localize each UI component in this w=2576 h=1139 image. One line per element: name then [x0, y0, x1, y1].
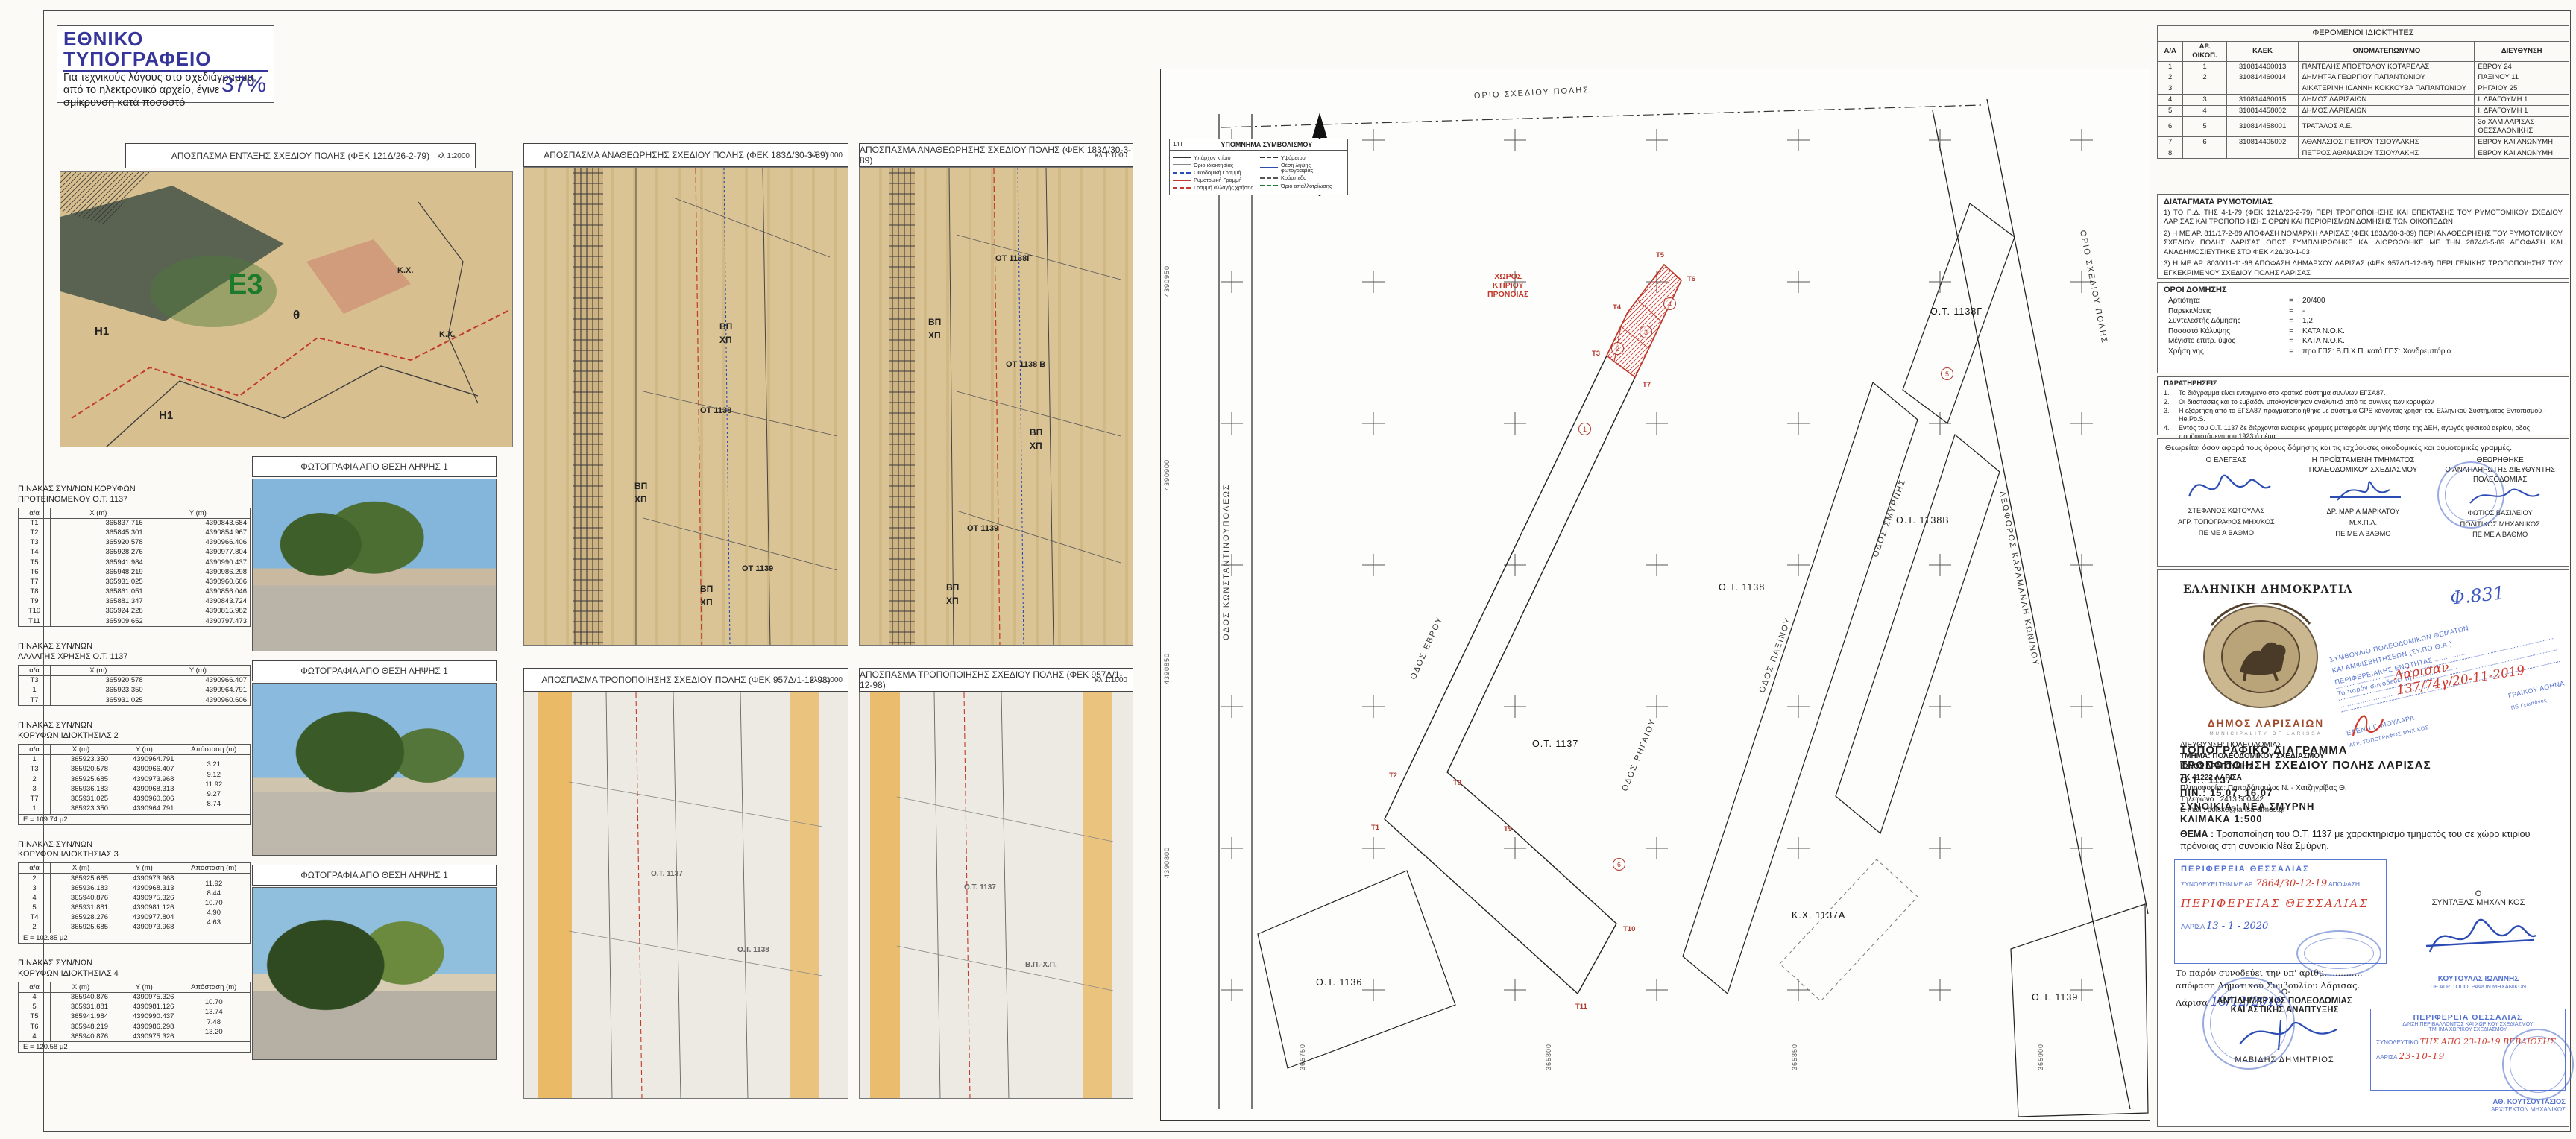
notes-box: ΠΑΡΑΤΗΡΗΣΕΙΣ 1.Το διάγραμμα είναι ενταγμ…: [2157, 376, 2569, 435]
map-zone-label: Β.Π.-Χ.Π.: [1025, 961, 1057, 969]
welfare-building-label: ΧΩΡΟΣΚΤΙΡΙΟΥΠΡΟΝΟΙΑΣ: [1487, 272, 1528, 299]
legend: 1/Π ΥΠΟΜΝΗΜΑ ΣΥΜΒΟΛΙΣΜΟΥ Υπάρχον κτίριοΌ…: [1169, 139, 1348, 195]
photo-site-2: [252, 683, 497, 856]
map1-caption-text: ΑΠΟΣΠΑΣΜΑ ΕΝΤΑΞΗΣ ΣΧΕΔΙΟΥ ΠΟΛΗΣ (ΦΕΚ 121…: [171, 151, 429, 161]
legend-entry: Υψόμετρο: [1260, 155, 1344, 161]
coord-table-4: ΠΙΝΑΚΑΣ ΣΥΝ/ΝΩΝΚΟΡΥΦΩΝ ΙΔΙΟΚΤΗΣΙΑΣ 3 α/α…: [18, 840, 251, 944]
coord-table-1: ΠΙΝΑΚΑΣ ΣΥΝ/ΝΩΝ ΚΟΡΥΦΩΝΠΡΟΤΕΙΝΟΜΕΝΟΥ Ο.Τ…: [18, 485, 251, 627]
region-stamp-1: ΠΕΡΙΦΕΡΕΙΑ ΘΕΣΣΑΛΙΑΣ ΣΥΝΟΔΕΥΕΙ ΤΗΝ ΜΕ ΑΡ…: [2174, 859, 2387, 964]
coordinate-tables: ΠΙΝΑΚΑΣ ΣΥΝ/ΝΩΝ ΚΟΡΥΦΩΝΠΡΟΤΕΙΝΟΜΕΝΟΥ Ο.Τ…: [18, 485, 251, 1067]
decree-item: 1) ΤΟ Π.Δ. ΤΗΣ 4-1-79 (ΦΕΚ 121Δ/26-2-79)…: [2164, 209, 2563, 227]
map-zone-label: ΒΠ: [700, 584, 713, 594]
x-coordinate-label: 365800: [1545, 1044, 1552, 1070]
parcel-number: 3: [1640, 326, 1652, 338]
legend-entry: Υπάρχον κτίριο: [1173, 155, 1257, 161]
reduction-percent: 37%: [221, 72, 266, 98]
owner-row: 22310814460014ΔΗΜΗΤΡΑ ΓΕΩΡΓΙΟΥ ΠΑΠΑΝΤΩΝΙ…: [2158, 72, 2569, 83]
approval-col-checker: Ο ΕΛΕΓΞΑΣ ΣΤΕΦΑΝΟΣ ΚΩΤΟΥΛΑΣΑΓΡ. ΤΟΠΟΓΡΑΦ…: [2158, 455, 2295, 540]
legend-entry: Όριο ιδιοκτησίας: [1173, 163, 1257, 168]
signature-checker: [2178, 465, 2275, 504]
owner-row: 8ΠΕΤΡΟΣ ΑΘΑΝΑΣΙΟΥ ΤΣΙΟΥΛΑΚΗΣΕΒΡΟΥ ΚΑΙ ΑΝ…: [2158, 148, 2569, 159]
coord-row: Τ8365861.0514390856.046: [19, 587, 251, 597]
map1-caption: ΑΠΟΣΠΑΣΜΑ ΕΝΤΑΞΗΣ ΣΧΕΔΙΟΥ ΠΟΛΗΣ (ΦΕΚ 121…: [125, 143, 476, 168]
coord-row: Τ3365920.5784390966.406: [19, 538, 251, 548]
legend-entry: Ρυμοτομική Γραμμή: [1173, 177, 1257, 183]
photo1-caption: ΦΩΤΟΓΡΑΦΙΑ ΑΠΟ ΘΕΣΗ ΛΗΨΗΣ 1: [252, 456, 497, 477]
map-zone-label: ΟΤ 1138Γ: [995, 254, 1032, 263]
municipal-seal: [2437, 461, 2504, 529]
parcel-number: 4: [1663, 297, 1676, 310]
map-zone-label: Ε3: [228, 269, 262, 301]
mapB-top-drawing: [860, 168, 1133, 646]
sypotha-member-2: ΓΡΑΪΚΟΥ ΑΘΗΝΑΠΕ Γεωπόνος: [2507, 678, 2569, 713]
site-plan: Ο.Τ. 1137Ο.Τ. 1138Ο.Τ. 1138ΒΟ.Τ. 1138ΓΟ.…: [1160, 69, 2150, 1121]
map-zone-label: Η1: [159, 409, 173, 422]
term-row: Ποσοστό Κάλυψης=ΚΑΤΑ Ν.Ο.Κ.: [2168, 327, 2569, 335]
map-zone-label: ΧΠ: [634, 494, 647, 505]
map-zone-label: Ο.Τ. 1137: [651, 870, 683, 878]
drawing-sheet: ΕΘΝΙΚΟ ΤΥΠΟΓΡΑΦΕΙΟ Για τεχνικούς λόγους …: [0, 0, 2576, 1139]
coord-row: Τ7365931.0254390960.606: [19, 577, 251, 587]
approval-statement: Θεωρείται όσον αφορά τους όρους δόμησης …: [2165, 444, 2561, 452]
block-label: Κ.Χ. 1137Α: [1792, 910, 1845, 921]
map-zone-label: θ: [293, 308, 300, 323]
theme: ΘΕΜΑ : Τροποποίηση του Ο.Τ. 1137 με χαρα…: [2180, 828, 2557, 853]
site-plan-drawing: [1161, 69, 2150, 1120]
term-row: Συντελεστής Δόμησης=1,2: [2168, 317, 2569, 325]
mapB-top-caption: ΑΠΟΣΠΑΣΜΑ ΑΝΑΘΕΩΡΗΣΗΣ ΣΧΕΔΙΟΥ ΠΟΛΗΣ (ΦΕΚ…: [859, 143, 1133, 167]
parcel-number: 1: [1578, 423, 1591, 435]
notes-list: 1.Το διάγραμμα είναι ενταγμένο στο κρατι…: [2158, 389, 2569, 441]
legend-symbol-line: [1173, 187, 1191, 189]
coord-table-4-title: ΠΙΝΑΚΑΣ ΣΥΝ/ΝΩΝΚΟΡΥΦΩΝ ΙΔΙΟΚΤΗΣΙΑΣ 3: [18, 840, 251, 861]
x-coordinate-label: 365850: [1791, 1044, 1798, 1070]
y-coordinate-label: 4390850: [1163, 653, 1171, 684]
legend-entry: Γραμμή αλλαγής χρήσης: [1173, 185, 1257, 191]
y-coordinate-label: 4390800: [1163, 847, 1171, 878]
mapB-top-body: ΟΤ 1138ΓΒΠΧΠΟΤ 1138 ΒΒΠΧΠΟΤ 1139ΒΠΧΠ: [859, 167, 1133, 646]
y-coordinate-label: 4390900: [1163, 459, 1171, 490]
area-value: Ε = 120.58 μ2: [18, 1042, 251, 1053]
survey-point-label: Τ6: [1687, 275, 1695, 283]
map-zone-label: ΧΠ: [928, 330, 941, 341]
terms-list: Αρτιότητα=20/400 Παρεκκλίσεις=- Συντελεσ…: [2158, 297, 2569, 356]
legend-symbol-line: [1260, 185, 1278, 186]
y-coordinate-label: 4390950: [1163, 265, 1171, 297]
deputy-round-seal: [2202, 977, 2295, 1070]
map1-body: Ε3Η1Η1θΚ.Χ.Κ.Χ.: [60, 171, 513, 447]
term-row: Μέγιστο επιτρ. ύψος=ΚΑΤΑ Ν.Ο.Κ.: [2168, 337, 2569, 345]
map-zone-label: Κ.Χ.: [397, 266, 413, 275]
approval-box: Θεωρείται όσον αφορά τους όρους δόμησης …: [2157, 438, 2569, 567]
owner-row: 11310814460013ΠΑΝΤΕΛΗΣ ΑΠΟΣΤΟΛΟΥ ΚΟΤΑΡΕΛ…: [2158, 61, 2569, 72]
region2-round-seal: [2502, 1029, 2574, 1100]
map-zone-label: ΒΠ: [1030, 427, 1042, 438]
survey-point-label: Τ11: [1575, 1003, 1587, 1011]
map-zone-label: ΧΠ: [946, 596, 959, 606]
block-label: Ο.Τ. 1136: [1316, 977, 1362, 988]
approval-col-head: Η ΠΡΟΪΣΤΑΜΕΝΗ ΤΜΗΜΑΤΟΣΠΟΛΕΟΔΟΜΙΚΟΥ ΣΧΕΔΙ…: [2295, 455, 2432, 540]
survey-point-label: Τ8: [1453, 779, 1461, 787]
survey-point-label: Τ9: [1504, 825, 1512, 833]
owners-table: ΦΕΡΟΜΕΝΟΙ ΙΔΙΟΚΤΗΤΕΣ Α/Α ΑΡ. ΟΙΚΟΠ. ΚΑΕΚ…: [2157, 25, 2569, 159]
owners-title: ΦΕΡΟΜΕΝΟΙ ΙΔΙΟΚΤΗΤΕΣ: [2158, 26, 2569, 42]
map-zone-label: ΒΠ: [946, 582, 959, 593]
legend-symbol-line: [1173, 180, 1191, 181]
mapA-bottom-drawing: [524, 692, 848, 1099]
block-label: Ο.Τ. 1138Γ: [1930, 306, 1983, 317]
municipality-name-en: MUNICIPALITY OF LARISSA: [2180, 731, 2352, 736]
notes-title: ΠΑΡΑΤΗΡΗΣΕΙΣ: [2164, 379, 2569, 388]
photo-site-1: [252, 479, 497, 651]
survey-point-label: Τ10: [1623, 925, 1635, 933]
red-initials-scribble: [2346, 706, 2390, 743]
coord-row: Τ7365931.0254390960.606: [19, 695, 251, 706]
survey-point-label: Τ5: [1656, 251, 1664, 259]
coord-row: Τ1365837.7164390843.684: [19, 518, 251, 529]
map1-scale: κλ 1:2000: [438, 152, 470, 160]
coord-row: Τ3365920.5784390966.407: [19, 675, 251, 686]
map-zone-label: ΧΠ: [700, 597, 713, 608]
map-zone-label: ΒΠ: [634, 481, 647, 491]
signature-head: [2315, 475, 2412, 505]
photo3-caption: ΦΩΤΟΓΡΑΦΙΑ ΑΠΟ ΘΕΣΗ ΛΗΨΗΣ 1: [252, 865, 497, 886]
owner-row: 43310814460015ΔΗΜΟΣ ΛΑΡΙΣΑΙΩΝΙ. ΔΡΑΓΟΥΜΗ…: [2158, 95, 2569, 106]
coord-table-1-title: ΠΙΝΑΚΑΣ ΣΥΝ/ΝΩΝ ΚΟΡΥΦΩΝΠΡΟΤΕΙΝΟΜΕΝΟΥ Ο.Τ…: [18, 485, 251, 505]
map-zone-label: ΒΠ: [928, 317, 941, 327]
map-zone-label: Η1: [95, 325, 109, 338]
owner-row: 54310814458002ΔΗΜΟΣ ΛΑΡΙΣΑΙΩΝΙ. ΔΡΑΓΟΥΜΗ…: [2158, 106, 2569, 117]
legend-entry: Όριο απαλλοτρίωσης: [1260, 183, 1344, 189]
republic-header: ΕΛΛΗΝΙΚΗ ΔΗΜΟΚΡΑΤΙΑ: [2183, 584, 2352, 596]
building-terms-box: ΟΡΟΙ ΔΟΜΗΣΗΣ Αρτιότητα=20/400 Παρεκκλίσε…: [2157, 282, 2569, 373]
document-title: ΤΟΠΟΓΡΑΦΙΚΟ ΔΙΑΓΡΑΜΜΑ ΤΡΟΠΟΠΟΙΗΣΗ ΣΧΕΔΙΟ…: [2180, 743, 2431, 826]
mapB-bottom-body: Ο.Τ. 1137Β.Π.-Χ.Π.: [859, 692, 1133, 1099]
owner-row: 65310814458001ΤΡΑΤΑΛΟΣ Α.Ε.3ο ΧΛΜ ΛΑΡΙΣΑ…: [2158, 116, 2569, 136]
coord-row: Τ10365924.2284390815.982: [19, 607, 251, 616]
notice-line3: σμίκρυνση κατά ποσοστό: [63, 97, 268, 110]
drafting-engineer: Ο ΣΥΝΤΑΞΑΣ ΜΗΧΑΝΙΚΟΣ ΚΟΥΤΟΥΛΑΣ ΙΩΑΝΝΗΣ Π…: [2404, 889, 2553, 990]
photo-site-3: [252, 887, 497, 1060]
map-zone-label: Κ.Χ.: [439, 330, 455, 339]
term-row: Παρεκκλίσεις=-: [2168, 307, 2569, 315]
legend-right-column: ΥψόμετροΘέση λήψης φωτογραφίαςΚράσπεδοΌρ…: [1260, 153, 1344, 192]
coord-table-3-title: ΠΙΝΑΚΑΣ ΣΥΝ/ΝΩΝΚΟΡΥΦΩΝ ΙΔΙΟΚΤΗΣΙΑΣ 2: [18, 721, 251, 742]
printing-office-notice: ΕΘΝΙΚΟ ΤΥΠΟΓΡΑΦΕΙΟ Για τεχνικούς λόγους …: [57, 25, 274, 103]
notice-title: ΕΘΝΙΚΟ ΤΥΠΟΓΡΑΦΕΙΟ: [63, 29, 268, 72]
coord-row: Τ2365845.3014390854.967: [19, 529, 251, 538]
x-coordinate-label: 365750: [1299, 1044, 1306, 1070]
region-stamp-2: ΠΕΡΙΦΕΡΕΙΑ ΘΕΣΣΑΛΙΑΣ Δ/ΝΣΗ ΠΕΡΙΒΑΛΛΟΝΤΟΣ…: [2370, 1009, 2566, 1091]
coord-row: Τ4365928.2764390977.804: [19, 548, 251, 558]
checker-name: ΣΤΕΦΑΝΟΣ ΚΩΤΟΥΛΑΣΑΓΡ. ΤΟΠΟΓΡΑΦΟΣ ΜΗΧ/ΚΟΣ…: [2158, 505, 2295, 539]
area-value: Ε = 109.74 μ2: [18, 815, 251, 825]
coord-table-2-title: ΠΙΝΑΚΑΣ ΣΥΝ/ΝΩΝΑΛΛΑΓΗΣ ΧΡΗΣΗΣ Ο.Τ. 1137: [18, 642, 251, 663]
legend-entry: Θέση λήψης φωτογραφίας: [1260, 163, 1344, 174]
terms-title: ΟΡΟΙ ΔΟΜΗΣΗΣ: [2164, 285, 2569, 294]
coord-table-5-title: ΠΙΝΑΚΑΣ ΣΥΝ/ΝΩΝΚΟΡΥΦΩΝ ΙΔΙΟΚΤΗΣΙΑΣ 4: [18, 959, 251, 979]
coord-row: 4365940.8764390975.32613.20: [19, 1032, 251, 1042]
decree-item: 2) Η ΜΕ ΑΡ. 811/17-2-89 ΑΠΟΦΑΣΗ ΝΟΜΑΡΧΗ …: [2164, 230, 2563, 257]
block-label: Ο.Τ. 1139: [2032, 992, 2078, 1003]
legend-title: ΥΠΟΜΝΗΜΑ ΣΥΜΒΟΛΙΣΜΟΥ: [1185, 139, 1347, 150]
legend-entry: Κράσπεδο: [1260, 175, 1344, 181]
note-item: 2.Οι διαστάσεις και το εμβαδόν υπολογίσθ…: [2164, 398, 2563, 406]
photo2-caption: ΦΩΤΟΓΡΑΦΙΑ ΑΠΟ ΘΕΣΗ ΛΗΨΗΣ 1: [252, 660, 497, 681]
survey-point-label: Τ2: [1389, 772, 1397, 780]
survey-point-label: Τ1: [1371, 824, 1379, 832]
block-label: Ο.Τ. 1138Β: [1896, 515, 1950, 526]
mapA-top-body: ΒΠΧΠΟΤ 1138ΒΠΧΠΟΤ 1139ΒΠΧΠ: [523, 167, 848, 646]
owner-row: 3ΑΙΚΑΤΕΡΙΝΗ ΙΩΑΝΝΗ ΚΟΚΚΟΥΒΑ ΠΑΠΑΝΤΩΝΙΟΥΡ…: [2158, 83, 2569, 95]
map-zone-label: ΟΤ 1139: [967, 524, 998, 533]
coord-row: Τ5365941.9844390990.437: [19, 558, 251, 567]
decrees-box: ΔΙΑΤΑΓΜΑΤΑ ΡΥΜΟΤΟΜΙΑΣ 1) ΤΟ Π.Δ. ΤΗΣ 4-1…: [2157, 194, 2569, 279]
coord-table-5: ΠΙΝΑΚΑΣ ΣΥΝ/ΝΩΝΚΟΡΥΦΩΝ ΙΔΙΟΚΤΗΣΙΑΣ 4 α/α…: [18, 959, 251, 1053]
mapA-top-caption: ΑΠΟΣΠΑΣΜΑ ΑΝΑΘΕΩΡΗΣΗΣ ΣΧΕΔΙΟΥ ΠΟΛΗΣ (ΦΕΚ…: [523, 143, 848, 167]
region2-signer: ΑΘ. ΚΟΥΤΣΟΥΤΑΣΙΟΣ ΑΡΧΙΤΕΚΤΩΝ ΜΗΧΑΝΙΚΟΣ: [2381, 1098, 2566, 1113]
municipality-name: ΔΗΜΟΣ ΛΑΡΙΣΑΙΩΝ: [2180, 718, 2352, 729]
coord-row: Τ9365881.3474390843.724: [19, 597, 251, 607]
area-value: Ε = 102.85 μ2: [18, 933, 251, 944]
map-zone-label: ΟΤ 1139: [742, 564, 773, 573]
map-zone-label: Ο.Τ. 1137: [964, 883, 996, 892]
map-zone-label: Ο.Τ. 1138: [737, 946, 769, 954]
legend-symbol-line: [1260, 157, 1278, 158]
deputy-mayor: -Ο- ΑΝΤΙΔΗΜΑΡΧΟΣ ΠΟΛΕΟΔΟΜΙΑΣ ΚΑΙ ΑΣΤΙΚΗΣ…: [2180, 988, 2389, 1064]
map-zone-label: ΧΠ: [719, 335, 732, 345]
legend-symbol-line: [1173, 157, 1191, 158]
coord-row: 1365923.3504390964.7918.74: [19, 804, 251, 814]
map-zone-label: ΧΠ: [1030, 441, 1042, 451]
signature-engineer: [2415, 907, 2542, 965]
block-label: Ο.Τ. 1137: [1532, 739, 1578, 749]
parcel-number: 5: [1941, 367, 1953, 380]
coord-table-3: ΠΙΝΑΚΑΣ ΣΥΝ/ΝΩΝΚΟΡΥΦΩΝ ΙΔΙΟΚΤΗΣΙΑΣ 2 α/α…: [18, 721, 251, 824]
legend-left-column: Υπάρχον κτίριοΌριο ιδιοκτησίαςΟικοδομική…: [1173, 153, 1257, 192]
legend-symbol-line: [1260, 167, 1278, 168]
mapA-bottom-caption: ΑΠΟΣΠΑΣΜΑ ΤΡΟΠΟΠΟΙΗΣΗΣ ΣΧΕΔΙΟΥ ΠΟΛΗΣ (ΦΕ…: [523, 668, 848, 692]
map1-drawing: [60, 172, 513, 447]
survey-point-label: Τ4: [1613, 303, 1621, 312]
mapA-top-drawing: [524, 168, 848, 646]
owner-row: 76310814405002ΑΘΑΝΑΣΙΟΣ ΠΕΤΡΟΥ ΤΣΙΟΥΛΑΚΗ…: [2158, 136, 2569, 148]
coord-row: Τ11365909.6524390797.473: [19, 616, 251, 627]
parcel-number: 6: [1613, 858, 1625, 871]
street-label: ΟΔΟΣ ΚΩΝΣΤΑΝΤΙΝΟΥΠΟΛΕΩΣ: [1222, 483, 1231, 640]
map-zone-label: ΟΤ 1138: [700, 406, 731, 415]
x-coordinate-label: 365900: [2037, 1044, 2044, 1070]
head-name: ΔΡ. ΜΑΡΙΑ ΜΑΡΚΑΤΟΥΜ.Χ.Π.Α.ΠΕ ΜΕ Α ΒΑΘΜΟ: [2295, 506, 2432, 540]
title-block: ΕΛΛΗΝΙΚΗ ΔΗΜΟΚΡΑΤΙΑ Φ.831 ΔΗΜΟΣ ΛΑΡΙΣΑΙΩ…: [2157, 569, 2569, 1127]
photos-column: ΦΩΤΟΓΡΑΦΙΑ ΑΠΟ ΘΕΣΗ ΛΗΨΗΣ 1 ΦΩΤΟΓΡΑΦΙΑ Α…: [252, 456, 497, 1060]
legend-symbol-line: [1173, 172, 1191, 174]
coord-row: Τ6365948.2194390986.298: [19, 567, 251, 577]
owners-table-wrap: ΦΕΡΟΜΕΝΟΙ ΙΔΙΟΚΤΗΤΕΣ Α/Α ΑΡ. ΟΙΚΟΠ. ΚΑΕΚ…: [2157, 25, 2569, 159]
municipality-logo: [2201, 603, 2320, 715]
mapA-bottom-body: Ο.Τ. 1137Ο.Τ. 1138: [523, 692, 848, 1099]
decree-item: 3) Η ΜΕ ΑΡ. 8030/11-11-98 ΑΠΟΦΑΣΗ ΔΗΜΑΡΧ…: [2164, 259, 2563, 278]
mapB-bottom-drawing: [860, 692, 1133, 1099]
mapB-bottom-caption: ΑΠΟΣΠΑΣΜΑ ΤΡΟΠΟΠΟΙΗΣΗΣ ΣΧΕΔΙΟΥ ΠΟΛΗΣ (ΦΕ…: [859, 668, 1133, 692]
block-label: Ο.Τ. 1138: [1719, 582, 1765, 593]
map-zone-label: ΒΠ: [719, 321, 732, 332]
legend-ref: 1/Π: [1170, 139, 1185, 150]
coord-row: 1365923.3504390964.791: [19, 686, 251, 695]
legend-symbol-line: [1173, 164, 1191, 165]
file-number: Φ.831: [2449, 582, 2506, 608]
term-row: Αρτιότητα=20/400: [2168, 297, 2569, 305]
survey-point-label: Τ3: [1592, 350, 1600, 358]
term-row: Χρήση γης=προ ΓΠΣ: Β.Π.Χ.Π. κατά ΓΠΣ: Χο…: [2168, 347, 2569, 356]
note-item: 1.Το διάγραμμα είναι ενταγμένο στο κρατι…: [2164, 389, 2563, 397]
decrees-list: 1) ΤΟ Π.Δ. ΤΗΣ 4-1-79 (ΦΕΚ 121Δ/26-2-79)…: [2158, 209, 2569, 278]
survey-point-label: Τ7: [1643, 381, 1651, 389]
map-zone-label: ΟΤ 1138 Β: [1006, 360, 1045, 369]
coord-row: 2365925.6854390973.9684.63: [19, 923, 251, 933]
legend-entry: Οικοδομική Γραμμή: [1173, 170, 1257, 176]
coord-table-2: ΠΙΝΑΚΑΣ ΣΥΝ/ΝΩΝΑΛΛΑΓΗΣ ΧΡΗΣΗΣ Ο.Τ. 1137 …: [18, 642, 251, 706]
legend-symbol-line: [1260, 177, 1278, 179]
decrees-title: ΔΙΑΤΑΓΜΑΤΑ ΡΥΜΟΤΟΜΙΑΣ: [2164, 198, 2569, 206]
parcel-number: 2: [1611, 342, 1624, 355]
note-item: 3.Η εξάρτηση από το ΕΓΣΑ87 πραγματοποιήθ…: [2164, 407, 2563, 423]
approval-col-director: ΘΕΩΡΗΘΗΚΕΟ ΑΝΑΠΛΗΡΩΤΗΣ ΔΙΕΥΘΥΝΤΗΣΠΟΛΕΟΔΟ…: [2431, 455, 2569, 540]
